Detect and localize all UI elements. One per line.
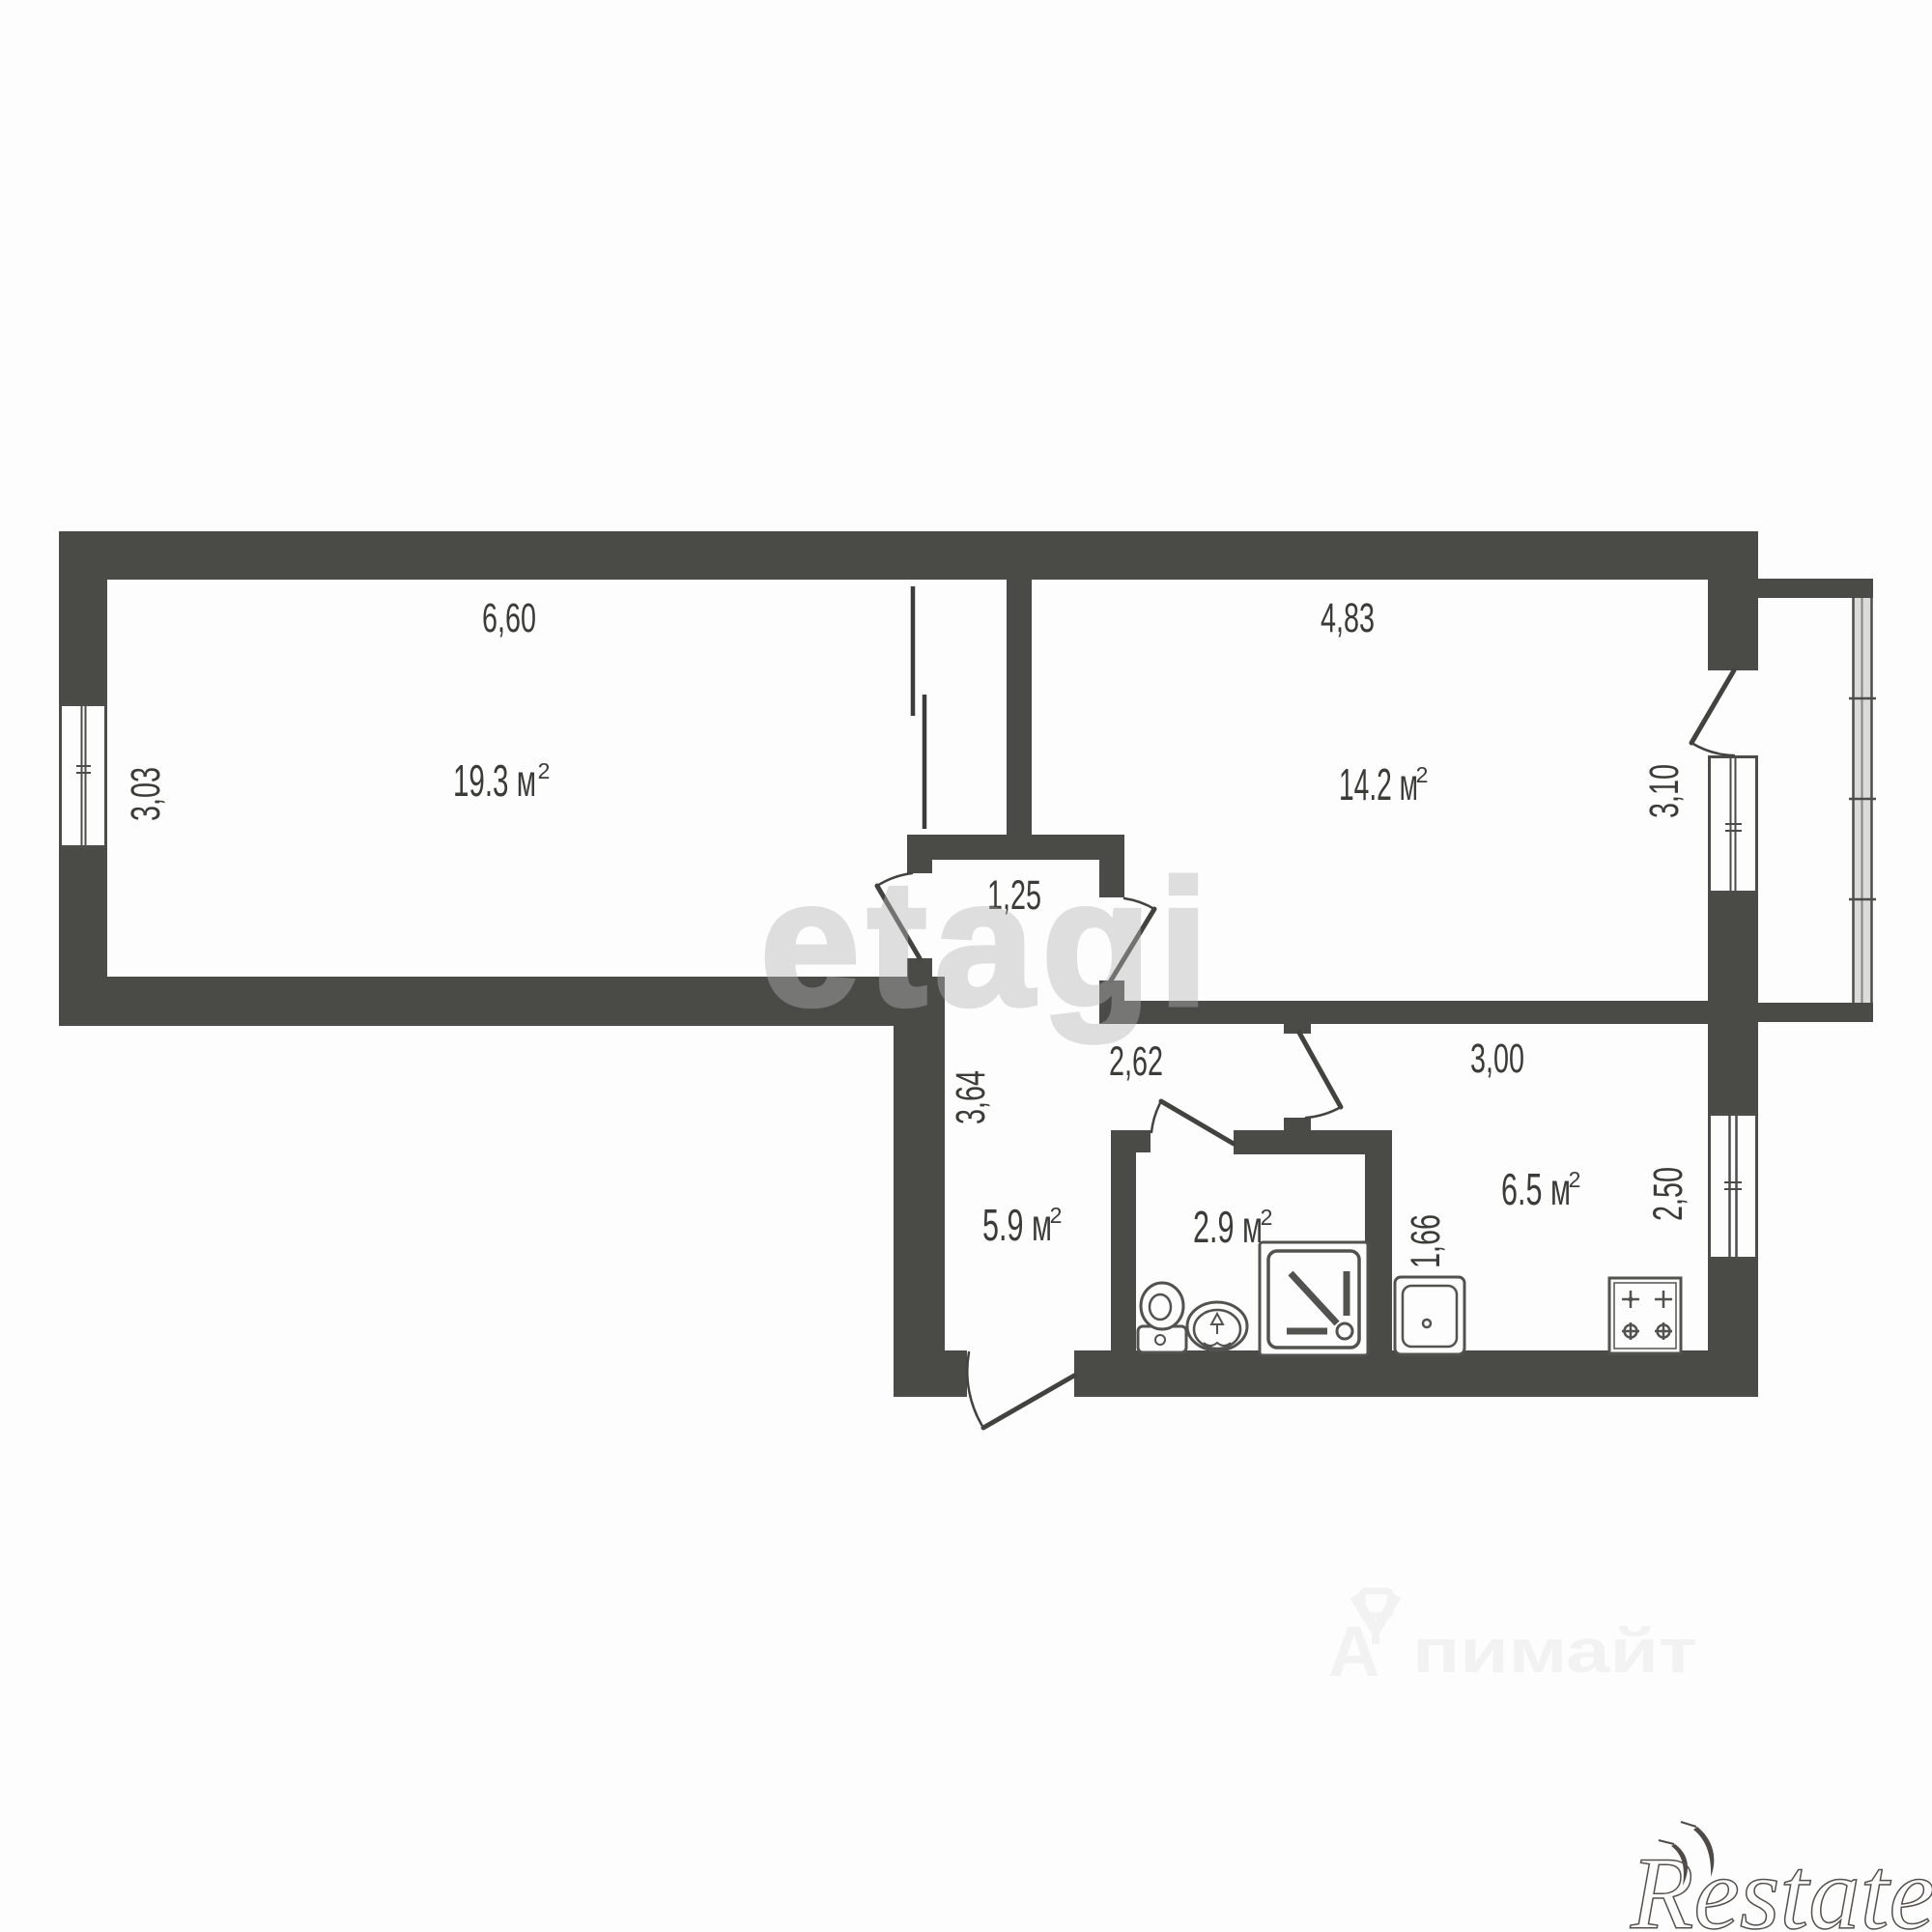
svg-text:2: 2 bbox=[538, 758, 551, 783]
svg-text:2,62: 2,62 bbox=[1109, 1038, 1163, 1085]
svg-text:etagi: etagi bbox=[760, 844, 1216, 1043]
svg-text:5.9 м: 5.9 м bbox=[982, 1200, 1052, 1250]
svg-text:A: A bbox=[1328, 1611, 1379, 1691]
svg-text:3,00: 3,00 bbox=[1470, 1036, 1524, 1082]
svg-text:Restate: Restate bbox=[1630, 1837, 1932, 1932]
svg-text:4,83: 4,83 bbox=[1321, 595, 1375, 641]
svg-text:14.2 м: 14.2 м bbox=[1339, 759, 1418, 810]
svg-text:2: 2 bbox=[1050, 1203, 1063, 1228]
svg-text:3,10: 3,10 bbox=[1641, 764, 1688, 818]
svg-text:2: 2 bbox=[1261, 1205, 1273, 1230]
svg-text:3,64: 3,64 bbox=[948, 1070, 994, 1124]
svg-text:6.5 м: 6.5 м bbox=[1501, 1164, 1571, 1214]
svg-text:2,50: 2,50 bbox=[1645, 1167, 1691, 1221]
svg-text:19.3 м: 19.3 м bbox=[453, 755, 536, 806]
svg-text:3,03: 3,03 bbox=[123, 767, 169, 821]
svg-text:пимайт: пимайт bbox=[1412, 1616, 1697, 1686]
svg-text:2.9 м: 2.9 м bbox=[1193, 1202, 1263, 1252]
svg-text:2: 2 bbox=[1416, 762, 1429, 787]
svg-text:6,60: 6,60 bbox=[482, 595, 536, 641]
svg-text:1,66: 1,66 bbox=[1403, 1214, 1449, 1268]
svg-text:2: 2 bbox=[1569, 1167, 1581, 1192]
